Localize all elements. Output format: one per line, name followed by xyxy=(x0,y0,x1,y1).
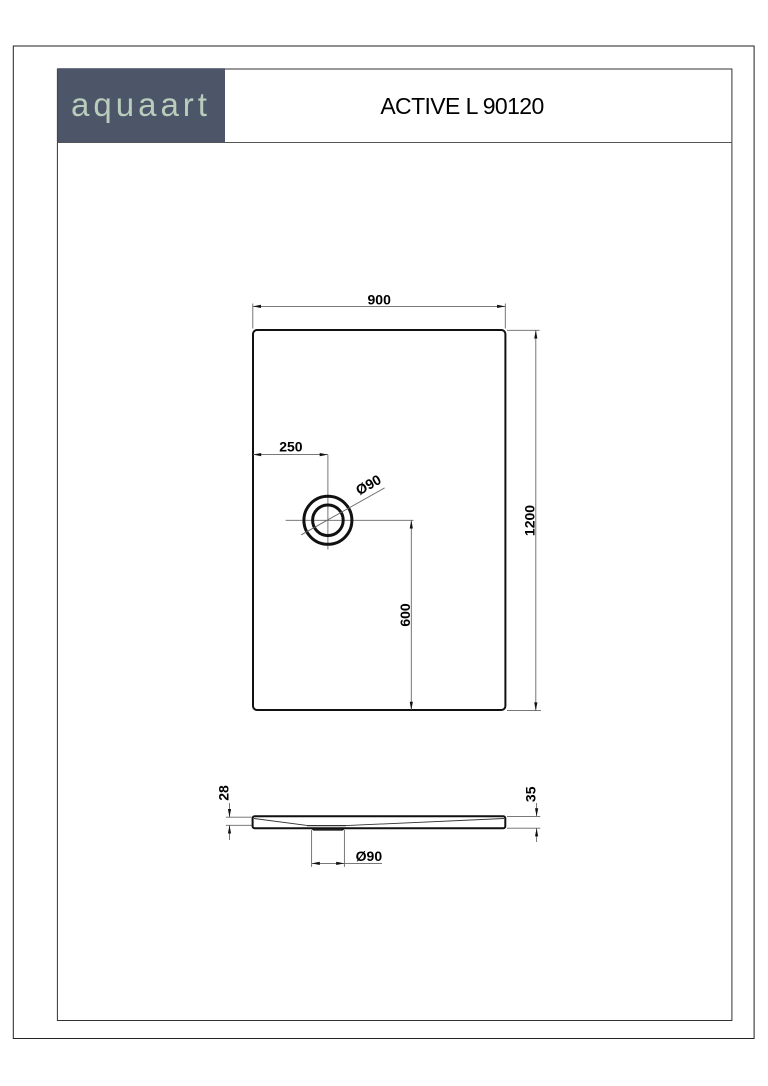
svg-text:Ø90: Ø90 xyxy=(356,848,383,864)
svg-text:aquaart: aquaart xyxy=(71,86,211,123)
svg-text:1200: 1200 xyxy=(521,505,537,536)
svg-text:28: 28 xyxy=(216,785,232,801)
svg-text:900: 900 xyxy=(368,292,392,308)
svg-text:600: 600 xyxy=(397,603,413,627)
svg-text:ACTIVE L 90120: ACTIVE L 90120 xyxy=(380,93,543,119)
svg-text:35: 35 xyxy=(522,786,538,802)
svg-text:Ø90: Ø90 xyxy=(353,471,384,498)
svg-text:250: 250 xyxy=(279,439,303,455)
